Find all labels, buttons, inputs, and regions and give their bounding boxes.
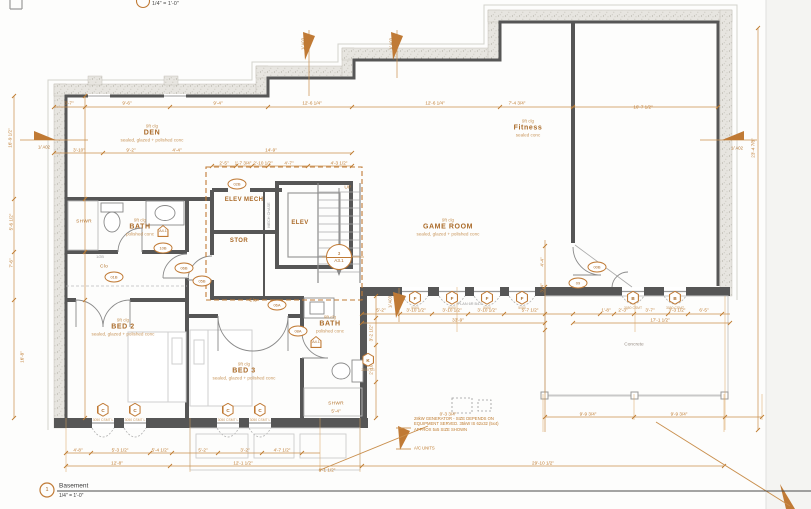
dimension-text: 3'-7": [64, 101, 73, 106]
dimension-text: 9'-6": [122, 101, 131, 106]
dimension-text: 3'-10": [73, 148, 85, 153]
dimension-text: 14'-9": [265, 148, 277, 153]
label-1-2b: 1/2B: [96, 255, 104, 259]
dimension-text: 2'-10 1/2": [253, 161, 272, 166]
dimension-text: 5'-6 1/2": [9, 214, 14, 231]
sheet-margin: [766, 0, 811, 509]
label-elev: ELEV: [291, 220, 308, 226]
label-clo: Clo: [100, 265, 108, 270]
room-label-bed-3: 9ft clgBED 3sealed, glazed + polished co…: [213, 361, 276, 380]
dimension-text: 16'-8": [20, 351, 25, 363]
label-concrete: Concrete: [624, 343, 643, 348]
dimension-text: 6'-5": [699, 308, 708, 313]
door-tag-05b: 05B: [193, 276, 212, 287]
dimension-text: 4'-4": [540, 257, 545, 266]
window-tag-c: C3050 CSMT L: [125, 403, 146, 422]
cropped-view-scale: 1/4" = 1'-0": [152, 1, 179, 7]
dimension-text: 16'-9 1/2": [8, 128, 13, 147]
door-tag-06b: 06B: [175, 263, 194, 274]
window-tag-f: F5050: [409, 291, 421, 310]
section-flag-label: 1/ A03: [389, 38, 394, 50]
dimension-text: 7'-4 3/4": [509, 101, 526, 106]
dimension-text: 4'-7 1/2": [274, 448, 291, 453]
basement-floor-plan: 1/4" = 1'-0" 1 Basement 1/4" = 1'-0" 9ft…: [0, 0, 811, 509]
dimension-text: 2'-5": [219, 161, 228, 166]
dimension-text: 12'-8": [111, 461, 123, 466]
dimension-text: 3'-4": [540, 283, 545, 292]
label-plan-6r-b4-0: PLAN 6R B4.0: [458, 302, 483, 306]
dimension-text: 23'-4 7/8": [751, 138, 756, 157]
dimension-text: 9'-9 3/4": [671, 412, 688, 417]
plan-note: A/C UNITS: [414, 445, 435, 450]
label-shwr: SHWR: [76, 220, 92, 225]
dimension-text: 4'-3 1/2": [331, 161, 348, 166]
door-tag-09: 09: [569, 278, 588, 289]
dimension-text: 12'-1 1/2": [233, 461, 252, 466]
dimension-text: 5'-4": [331, 409, 340, 414]
dimension-text: 29'-10 1/2": [532, 461, 554, 466]
dimension-text: 5'-2": [376, 308, 385, 313]
dimension-text: 6'-1 1/2": [319, 468, 336, 473]
dimension-text: 7'-6": [9, 258, 14, 267]
dimension-text: 1'-7 3/4": [235, 161, 252, 166]
window-tag-f: F5050: [446, 291, 458, 310]
door-tag-10b: 10B: [154, 243, 173, 254]
room-label-bed-2: 9ft clgBED 2sealed, glazed + polished co…: [92, 317, 155, 336]
dimension-text: 9'-9 3/4": [580, 412, 597, 417]
dimension-text: 16'-7 1/2": [633, 105, 652, 110]
dimension-text: 4'-7": [284, 161, 293, 166]
dimension-text: 12'-6 1/4": [425, 101, 444, 106]
viewport-number: 1: [45, 487, 48, 493]
dimension-text: 3'-7": [645, 308, 654, 313]
view-title: Basement: [59, 483, 88, 490]
dimension-text: 1'-8": [601, 308, 610, 313]
room-label-bath: 9ft clgBATHpolished conc: [316, 314, 344, 333]
label-shwr: SHWR: [328, 402, 344, 407]
room-label-bath: 9ft clgBATHpolished conc: [126, 217, 154, 236]
label-mech-chase: MECH CHASE: [267, 202, 271, 227]
section-marker: 3A3.1: [326, 244, 352, 270]
door-tag-01b: 01B: [105, 272, 124, 283]
floor-plan-drawing: [0, 0, 811, 509]
section-flag-label: 1/ A02: [731, 146, 743, 151]
dimension-text: 17'-1 1/2": [650, 318, 669, 323]
section-flag-label: 1/ A02: [38, 145, 50, 150]
window-tag-c: C3050 CSMT L: [250, 403, 271, 422]
door-tag-08a: 08A: [289, 326, 308, 337]
label-clo: Clo: [249, 299, 257, 304]
window-tag-f: F5050: [516, 291, 528, 310]
plan-note: 28kW GENERATOR - SIZE DEPENDS ONEQUIPMEN…: [414, 416, 499, 432]
door-tag-00b: 00B: [588, 262, 607, 273]
dimension-text: 3'-2 1/2": [369, 325, 374, 342]
window-tag-f: F5050: [481, 291, 493, 310]
window-tag-b: B3050 CSMT: [666, 291, 684, 310]
door-tag-02b: 02B: [228, 179, 247, 190]
room-label-den: 9ft clgDENsealed, glazed + polished conc: [121, 123, 184, 142]
dimension-text: 5'-4 1/2": [152, 448, 169, 453]
window-tag-b: B3050 CSMT: [624, 291, 642, 310]
dimension-text: 12'-6 1/4": [302, 101, 321, 106]
dimension-text: 33'-9": [452, 318, 464, 323]
section-flag-label: 1/ A03: [388, 296, 393, 308]
dimension-text: 5'-2": [198, 448, 207, 453]
dimension-text: 3'-2": [240, 448, 249, 453]
window-tag-c: C3050 CSMT L: [93, 403, 114, 422]
view-scale: 1/4" = 1'-0": [59, 493, 83, 499]
label-stor: STOR: [230, 238, 248, 244]
room-label-game-room: 9ft clgGAME ROOMsealed, glazed + polishe…: [417, 217, 480, 236]
dimension-text: 4'-8": [73, 448, 82, 453]
door-tag-06a: 06A: [268, 300, 287, 311]
dimension-text: 9'-2": [126, 148, 135, 153]
window-tag-c: C3050 CSMT L: [218, 403, 239, 422]
dimension-text: 4'-4": [172, 148, 181, 153]
dimension-text: 9'-4": [213, 101, 222, 106]
dimension-text: 5'-3 1/2": [112, 448, 129, 453]
label-up: UP: [344, 186, 351, 191]
label-elev-mech: ELEV MECH: [225, 197, 264, 203]
window-tag-k: K2000 FG: [361, 353, 374, 372]
room-label-fitness: 9ft clgFitnesssealed conc: [514, 118, 543, 137]
section-flag-label: 1/ A03: [301, 38, 306, 50]
